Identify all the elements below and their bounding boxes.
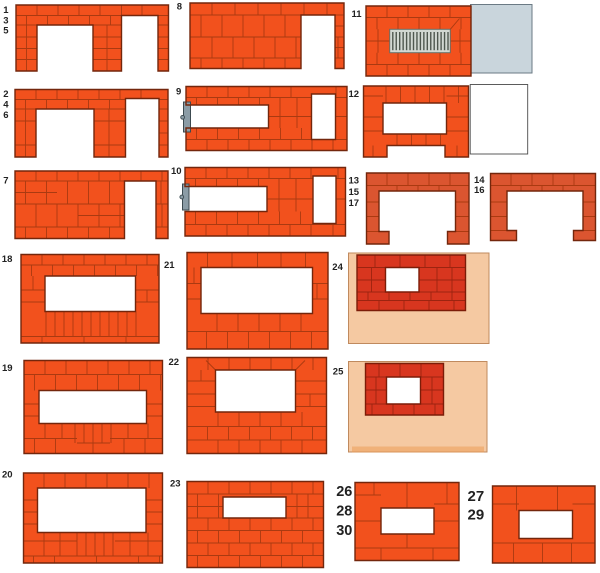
svg-text:19: 19 — [2, 363, 13, 374]
svg-text:6: 6 — [3, 110, 8, 121]
svg-text:27: 27 — [468, 488, 485, 505]
svg-text:7: 7 — [3, 175, 8, 186]
svg-text:2: 2 — [3, 89, 8, 100]
svg-text:11: 11 — [352, 9, 363, 20]
svg-text:24: 24 — [332, 262, 343, 273]
svg-text:9: 9 — [176, 86, 181, 97]
svg-text:15: 15 — [349, 187, 360, 198]
svg-text:26: 26 — [336, 484, 352, 500]
svg-text:8: 8 — [177, 1, 182, 12]
svg-text:28: 28 — [336, 504, 352, 520]
svg-text:20: 20 — [2, 470, 13, 481]
svg-text:16: 16 — [474, 185, 485, 196]
svg-text:25: 25 — [333, 367, 344, 378]
svg-text:29: 29 — [468, 507, 485, 524]
svg-text:5: 5 — [3, 26, 9, 37]
svg-text:4: 4 — [3, 100, 9, 111]
svg-text:17: 17 — [349, 198, 360, 209]
svg-text:18: 18 — [2, 254, 13, 265]
svg-text:12: 12 — [349, 89, 360, 100]
svg-text:21: 21 — [164, 260, 175, 271]
svg-text:23: 23 — [170, 479, 181, 490]
svg-text:13: 13 — [349, 176, 360, 187]
svg-text:22: 22 — [169, 357, 180, 368]
svg-text:1: 1 — [3, 5, 9, 16]
svg-text:10: 10 — [171, 166, 182, 177]
svg-text:30: 30 — [336, 523, 352, 539]
